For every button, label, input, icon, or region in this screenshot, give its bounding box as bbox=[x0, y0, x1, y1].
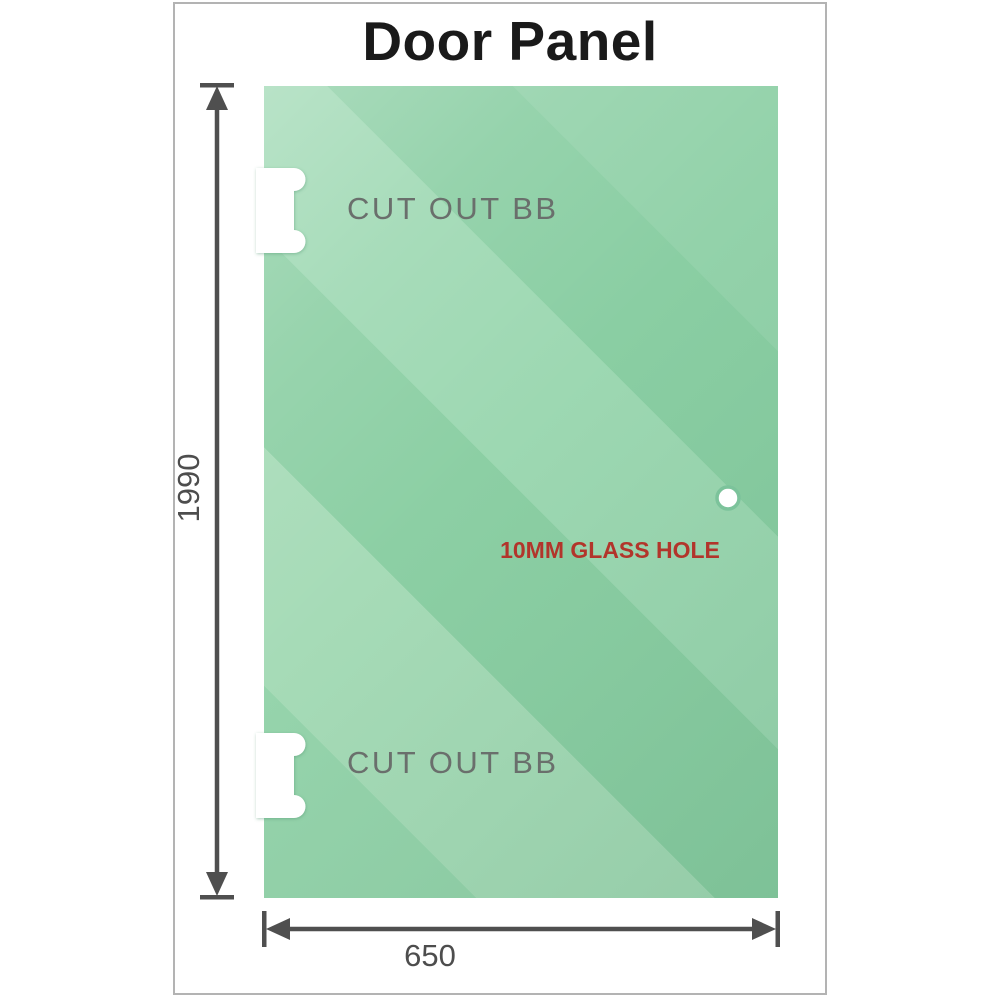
width-dimension-value: 650 bbox=[370, 938, 490, 974]
hinge-cutout-top bbox=[256, 168, 306, 253]
door-panel-diagram: Door Panel bbox=[0, 0, 1000, 1000]
width-dimension bbox=[262, 911, 780, 947]
cutout-bottom-label: CUT OUT BB bbox=[347, 745, 607, 781]
left-arrow-icon bbox=[266, 918, 290, 940]
diagram-overlay bbox=[0, 0, 1000, 1000]
hinge-cutout-bottom bbox=[256, 733, 306, 818]
up-arrow-icon bbox=[206, 86, 228, 110]
glass-hole bbox=[717, 487, 739, 509]
glass-hole-label: 10MM GLASS HOLE bbox=[500, 537, 720, 564]
right-arrow-icon bbox=[752, 918, 776, 940]
width-dim-right-tick bbox=[776, 911, 781, 947]
height-dimension-value: 1990 bbox=[169, 418, 209, 558]
width-dim-left-tick bbox=[262, 911, 267, 947]
cutout-top-label: CUT OUT BB bbox=[347, 191, 607, 227]
down-arrow-icon bbox=[206, 872, 228, 896]
